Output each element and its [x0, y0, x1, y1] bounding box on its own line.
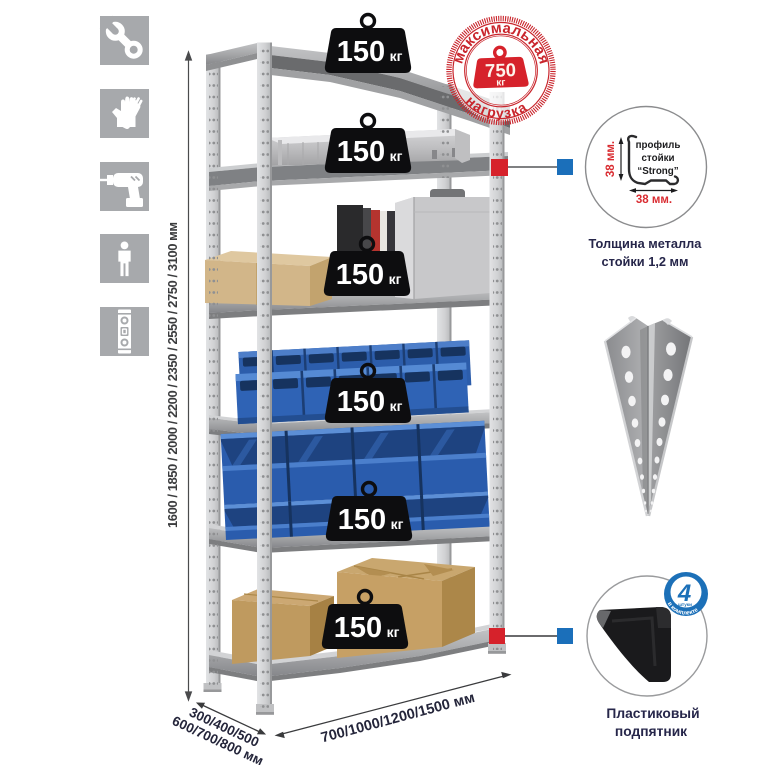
svg-text:кг: кг: [390, 148, 403, 164]
svg-text:150: 150: [337, 36, 385, 68]
svg-text:Пластиковый: Пластиковый: [606, 706, 699, 721]
svg-text:кг: кг: [387, 624, 400, 640]
svg-text:кг: кг: [390, 398, 403, 414]
svg-text:штуки: штуки: [678, 602, 692, 607]
svg-text:1600 / 1850 / 2000 / 2200 / 23: 1600 / 1850 / 2000 / 2200 / 2350 / 2550 …: [165, 222, 180, 528]
svg-text:кг: кг: [391, 516, 404, 532]
svg-text:Толщина металла: Толщина металла: [589, 236, 703, 251]
svg-text:стойки 1,2 мм: стойки 1,2 мм: [601, 254, 688, 269]
svg-text:150: 150: [337, 136, 385, 168]
svg-text:профиль: профиль: [636, 140, 681, 151]
svg-text:150: 150: [334, 612, 382, 644]
svg-text:38 мм.: 38 мм.: [636, 194, 672, 206]
svg-text:150: 150: [337, 386, 385, 418]
svg-text:подпятник: подпятник: [615, 724, 687, 739]
svg-text:кг: кг: [496, 77, 506, 88]
svg-text:кг: кг: [390, 48, 403, 64]
svg-text:38 мм.: 38 мм.: [605, 141, 617, 177]
svg-text:“Strong”: “Strong”: [637, 166, 678, 177]
svg-text:150: 150: [338, 504, 386, 536]
svg-text:150: 150: [336, 259, 384, 291]
svg-text:кг: кг: [389, 271, 402, 287]
svg-text:стойки: стойки: [641, 153, 674, 164]
